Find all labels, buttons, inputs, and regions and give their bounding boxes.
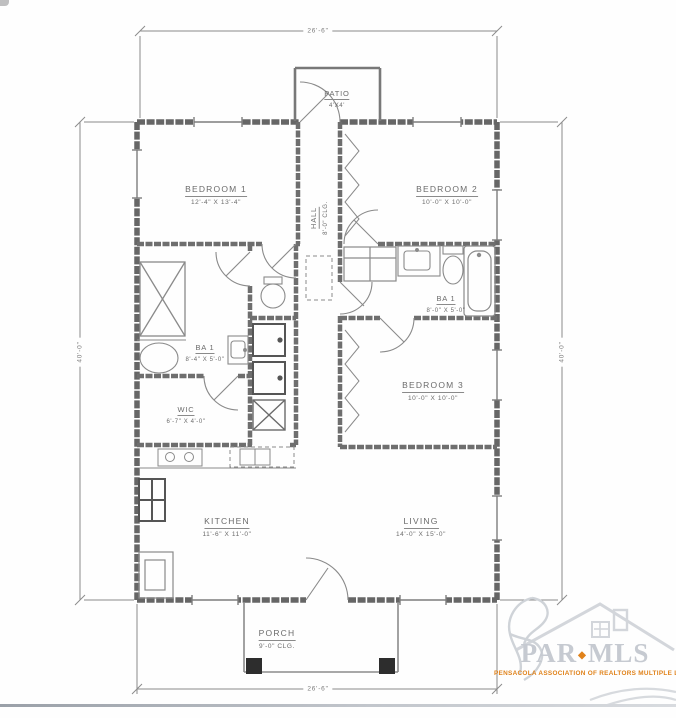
room-label-wic: WIC 6'-7" X 4'-0" — [166, 398, 205, 427]
watermark-tagline: PENSACOLA ASSOCIATION OF REALTORS MULTIP… — [494, 670, 676, 677]
room-name: BEDROOM 1 — [185, 184, 247, 197]
room-name: BA 1 — [436, 294, 455, 305]
toilet-left — [261, 277, 285, 308]
room-label-living: LIVING 14'-0" X 15'-0" — [396, 510, 446, 539]
room-dims: 8'-4" X 5'-0" — [185, 357, 224, 365]
bottom-edge-rule — [0, 704, 676, 707]
room-dims: 8'-0" X 5'-0" — [426, 308, 465, 316]
window-kitchen-bottom — [192, 594, 238, 606]
room-dims: 10'-0" X 10'-0" — [416, 199, 478, 207]
washer — [253, 324, 285, 356]
room-dims: 10'-0" X 10'-0" — [402, 395, 464, 403]
room-dims: 6'-7" X 4'-0" — [166, 419, 205, 427]
refrigerator — [139, 479, 165, 521]
room-dims: 8'-0" CLG. — [323, 201, 331, 235]
room-name: BEDROOM 2 — [416, 184, 478, 197]
dryer — [253, 362, 285, 394]
window-bedroom1-left — [131, 150, 143, 198]
room-name: BEDROOM 3 — [402, 380, 464, 393]
room-label-hall: HALL 8'-0" CLG. — [302, 201, 331, 235]
room-label-bedroom-2: BEDROOM 2 10'-0" X 10'-0" — [416, 178, 478, 207]
watermark-title: PAR◆MLS — [494, 640, 676, 667]
bathtub-right — [464, 246, 495, 316]
kitchen-counter — [139, 447, 296, 468]
dimension-bottom: 26'-6" — [303, 686, 332, 693]
room-label-bedroom-1: BEDROOM 1 12'-4" X 13'-4" — [185, 178, 247, 207]
dimension-left: 40'-0" — [77, 337, 84, 366]
watermark-word1: PAR — [521, 638, 578, 668]
door-bath1-left — [216, 252, 250, 286]
room-name: LIVING — [403, 516, 438, 529]
room-label-porch: PORCH 9'-0" CLG. — [259, 622, 296, 651]
room-label-bath-1-right: BA 1 8'-0" X 5'-0" — [426, 287, 465, 316]
shower — [140, 262, 185, 336]
watermark-word2: MLS — [588, 638, 650, 668]
door-bedroom3 — [380, 318, 414, 352]
room-name: BA 1 — [195, 343, 214, 354]
room-dims: 12'-4" X 13'-4" — [185, 199, 247, 207]
room-label-patio: PATIO 4'X4' — [324, 82, 349, 111]
door-bedroom2 — [344, 210, 378, 244]
dimension-top: 26'-6" — [303, 28, 332, 35]
room-dims: 11'-6" X 11'-0" — [202, 531, 251, 539]
toilet-right — [443, 246, 463, 284]
door-wic — [204, 376, 238, 410]
sink-vanity-left — [228, 336, 248, 364]
room-name: WIC — [178, 405, 195, 416]
watermark-separator-icon: ◆ — [577, 650, 588, 661]
door-bedroom1 — [262, 244, 296, 278]
door-front — [306, 558, 348, 600]
bathtub-left — [137, 340, 186, 373]
room-dims: 14'-0" X 15'-0" — [396, 531, 446, 539]
room-name: PORCH — [259, 628, 296, 641]
window-bedroom3-right — [491, 350, 503, 400]
closet-bifold-bedroom3 — [345, 330, 359, 432]
door-bath1-right — [340, 282, 372, 314]
room-dims: 4'X4' — [324, 103, 349, 111]
window-living-bottom — [400, 594, 446, 606]
corner-cabinet — [139, 552, 173, 598]
room-name: PATIO — [324, 89, 349, 100]
attic-access — [306, 256, 332, 300]
floor-plan-page: BEDROOM 1 12'-4" X 13'-4" BEDROOM 2 10'-… — [0, 0, 676, 718]
window-bedroom1-top — [194, 116, 242, 128]
room-label-kitchen: KITCHEN 11'-6" X 11'-0" — [202, 510, 251, 539]
window-bedroom2-right — [491, 190, 503, 240]
room-name: KITCHEN — [204, 516, 250, 529]
closet-bifold-bedroom2 — [345, 134, 359, 236]
water-heater — [253, 400, 285, 430]
sink-vanity-right — [398, 246, 440, 276]
stove — [158, 449, 202, 466]
mls-watermark: PAR◆MLS PENSACOLA ASSOCIATION OF REALTOR… — [494, 588, 676, 710]
room-dims: 9'-0" CLG. — [259, 643, 296, 651]
room-label-bath-1-left: BA 1 8'-4" X 5'-0" — [185, 336, 224, 365]
dimension-right: 40'-0" — [559, 337, 566, 366]
porch-post-left — [246, 658, 262, 674]
room-label-bedroom-3: BEDROOM 3 10'-0" X 10'-0" — [402, 374, 464, 403]
room-name: HALL — [309, 207, 320, 229]
porch-post-right — [379, 658, 395, 674]
window-bedroom2-top — [413, 116, 461, 128]
linen-closet — [344, 247, 396, 281]
window-living-right — [491, 496, 503, 540]
